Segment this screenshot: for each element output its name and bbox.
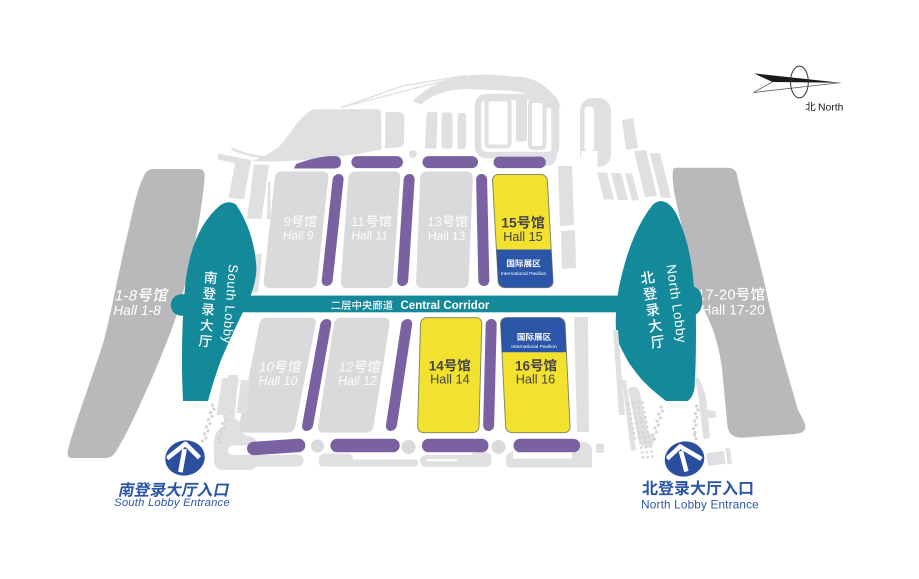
svg-text:14: 14 xyxy=(429,358,445,373)
svg-text:International Pavilion: International Pavilion xyxy=(511,344,557,350)
svg-text:13: 13 xyxy=(427,214,442,229)
svg-text:Hall 10: Hall 10 xyxy=(257,374,299,388)
svg-text:Central Corridor: Central Corridor xyxy=(401,300,490,312)
svg-text:12: 12 xyxy=(337,360,354,375)
svg-text:Hall 12: Hall 12 xyxy=(337,374,378,388)
svg-text:Hall 16: Hall 16 xyxy=(516,373,556,387)
svg-text:South Lobby Entrance: South Lobby Entrance xyxy=(114,497,230,509)
svg-text:North: North xyxy=(818,103,844,114)
svg-text:Hall 14: Hall 14 xyxy=(430,373,470,387)
svg-text:North Lobby Entrance: North Lobby Entrance xyxy=(641,498,759,511)
svg-text:11: 11 xyxy=(351,214,366,229)
svg-text:15: 15 xyxy=(501,215,517,231)
svg-text:Hall 13: Hall 13 xyxy=(428,229,466,243)
svg-text:16: 16 xyxy=(515,358,531,373)
svg-text:1-8: 1-8 xyxy=(113,288,139,305)
svg-text:International Pavilion: International Pavilion xyxy=(501,271,547,277)
svg-text:Hall 17-20: Hall 17-20 xyxy=(701,302,765,318)
svg-text:Hall 15: Hall 15 xyxy=(503,230,543,244)
svg-text:Hall 9: Hall 9 xyxy=(282,229,314,243)
svg-text:Hall 1-8: Hall 1-8 xyxy=(113,303,161,318)
svg-text:Hall 11: Hall 11 xyxy=(351,229,389,243)
